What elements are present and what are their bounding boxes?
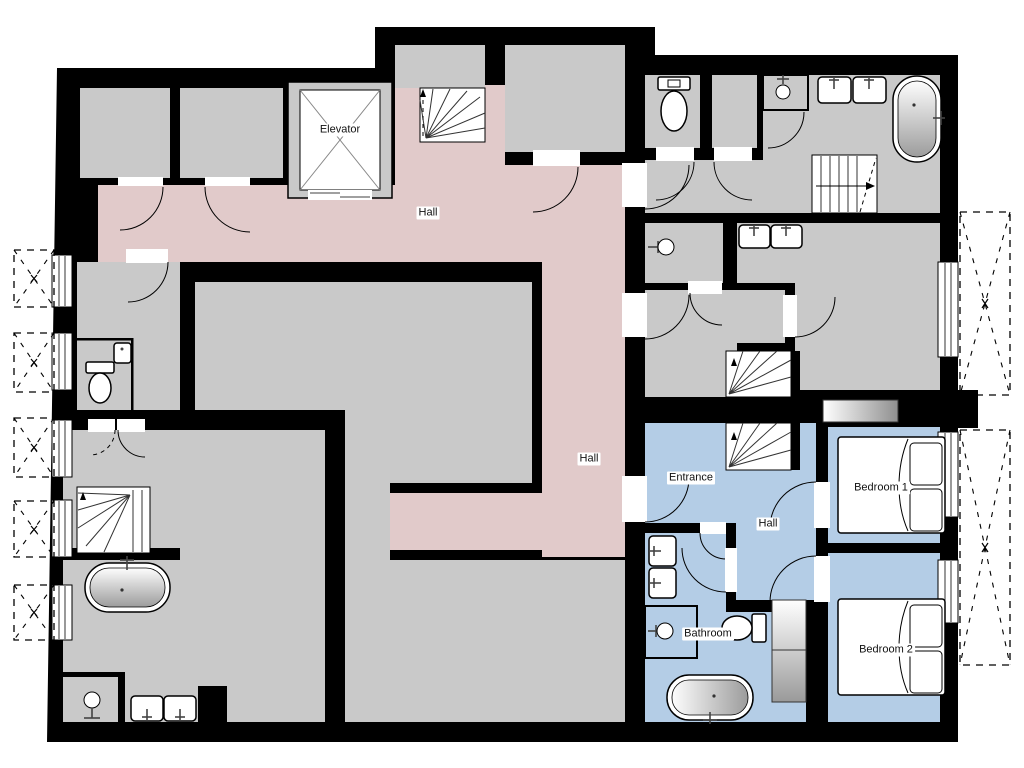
staircase-bottomleft-winder: [77, 487, 150, 553]
room-label-elevator: Elevator: [318, 124, 362, 137]
sink: [649, 568, 676, 598]
window: [52, 255, 72, 307]
window: [938, 262, 958, 357]
room-topmid-small-floor: [395, 45, 485, 88]
room-central-floor-b: [345, 410, 532, 483]
sink: [853, 77, 886, 103]
staircase-entrance-winder: [726, 423, 791, 470]
room-central-connector: [345, 483, 390, 560]
staircase-top-winder: [420, 88, 485, 142]
bathroom-floor-c: [772, 702, 806, 722]
room-topleft-b-floor: [180, 88, 283, 178]
sink: [771, 225, 802, 248]
room-topmid-floor: [505, 45, 625, 152]
elevator-shaft: [288, 82, 392, 200]
room-topleft-a-floor: [80, 88, 170, 178]
room-bottomcenter-floor: [345, 560, 625, 722]
wc-partition: [77, 338, 133, 341]
sink: [649, 536, 676, 566]
floor-plan: Elevator Hall Hall Entrance Hall Bedroom…: [0, 0, 1024, 768]
hall-apartment-floor-b: [800, 423, 816, 470]
room-label-hall-top: Hall: [417, 207, 440, 220]
room-label-hall-apartment: Hall: [757, 518, 780, 531]
storage-topright-floor: [712, 75, 757, 148]
room-label-bedroom-2: Bedroom 2: [857, 644, 915, 657]
bathtub: [667, 675, 753, 724]
wc-partition: [131, 338, 134, 410]
shower-midright-floor: [645, 223, 723, 283]
hall-main-arm-floor: [390, 493, 542, 550]
window: [52, 420, 72, 477]
toilet: [658, 77, 690, 131]
room-label-bathroom: Bathroom: [682, 628, 734, 641]
window: [52, 333, 72, 390]
staircase-midright-winder: [726, 351, 791, 397]
balcony: [14, 501, 54, 557]
room-central-floor-a: [195, 282, 532, 410]
balcony: [14, 418, 54, 477]
hall-top-floor-east: [505, 165, 625, 185]
hall-apartment-floor: [726, 470, 816, 600]
room-label-hall-main: Hall: [578, 453, 601, 466]
hall-main-corridor-floor: [542, 262, 625, 557]
window: [52, 500, 72, 557]
sink: [164, 696, 196, 721]
bathtub: [893, 76, 945, 162]
window: [52, 585, 72, 640]
balcony: [14, 585, 54, 640]
balcony: [14, 250, 54, 307]
sink: [818, 77, 851, 103]
room-label-bedroom-1: Bedroom 1: [852, 482, 910, 495]
staircase-topright-straight: [812, 155, 877, 213]
balcony: [14, 333, 54, 392]
wardrobe: [772, 600, 806, 702]
room-midright-b-floor: [795, 283, 940, 390]
wardrobe: [823, 400, 898, 422]
sink: [114, 343, 131, 363]
balcony: [960, 430, 1010, 665]
room-label-entrance: Entrance: [667, 472, 715, 485]
sink: [739, 225, 770, 248]
sink: [131, 696, 163, 721]
balcony: [960, 212, 1010, 395]
